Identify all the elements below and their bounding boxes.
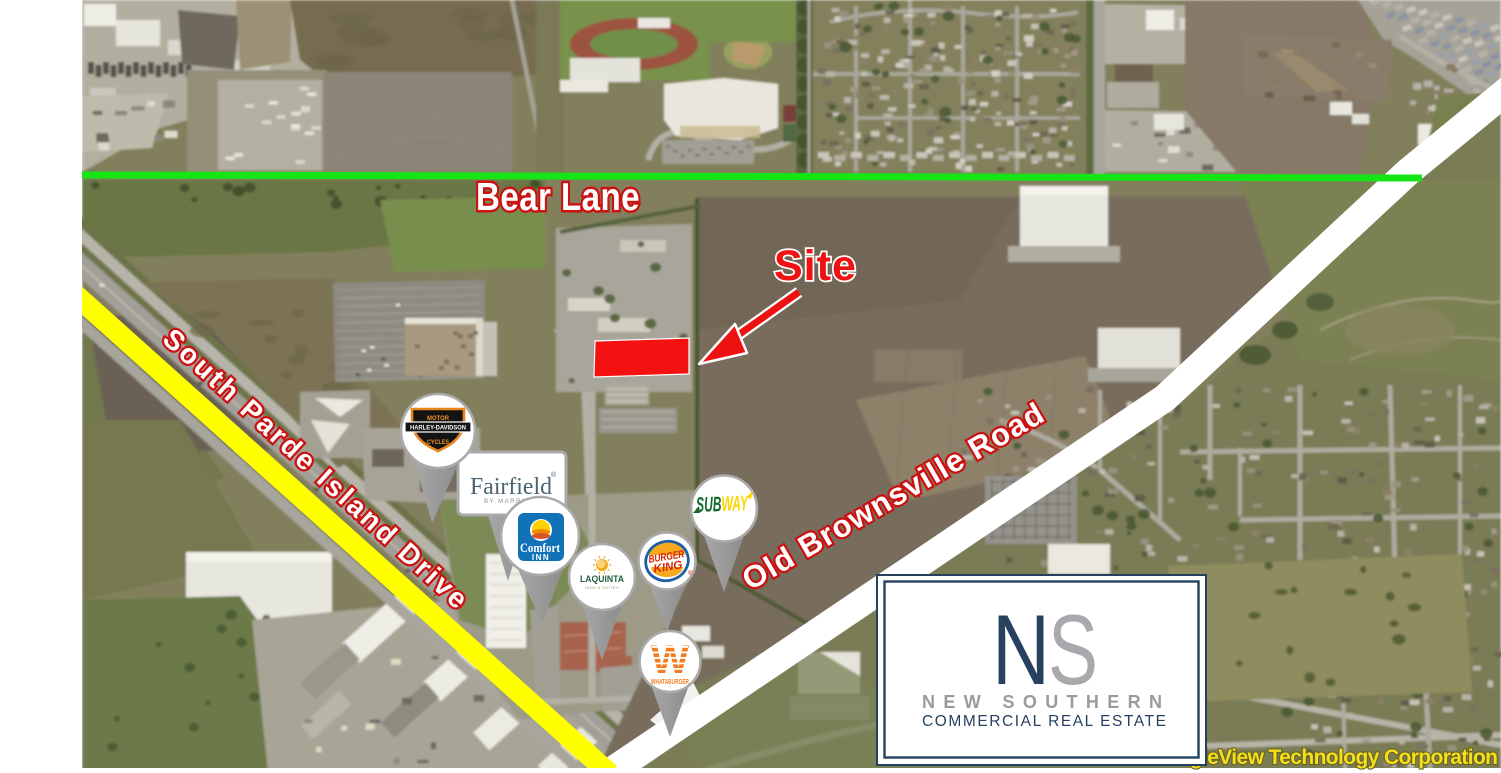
svg-text:MOTOR: MOTOR	[427, 416, 450, 422]
svg-text:®: ®	[688, 570, 693, 577]
svg-text:INN: INN	[532, 553, 550, 562]
svg-text:HARLEY-DAVIDSON: HARLEY-DAVIDSON	[410, 425, 466, 432]
svg-text:W: W	[651, 638, 689, 682]
svg-text:Bear Lane: Bear Lane	[476, 176, 640, 219]
svg-text:COMMERCIAL REAL ESTATE: COMMERCIAL REAL ESTATE	[922, 713, 1166, 730]
svg-text:Site: Site	[774, 242, 857, 290]
svg-text:LAQUINTA: LAQUINTA	[580, 574, 624, 584]
svg-text:N: N	[992, 594, 1050, 705]
svg-text:INNS & SUITES: INNS & SUITES	[585, 585, 619, 590]
svg-text:CYCLES: CYCLES	[427, 440, 449, 446]
svg-text:S: S	[1048, 594, 1098, 705]
svg-text:SUBWAY: SUBWAY	[696, 492, 750, 517]
svg-text:®: ®	[551, 471, 557, 479]
svg-text:WHATABURGER: WHATABURGER	[651, 677, 689, 686]
